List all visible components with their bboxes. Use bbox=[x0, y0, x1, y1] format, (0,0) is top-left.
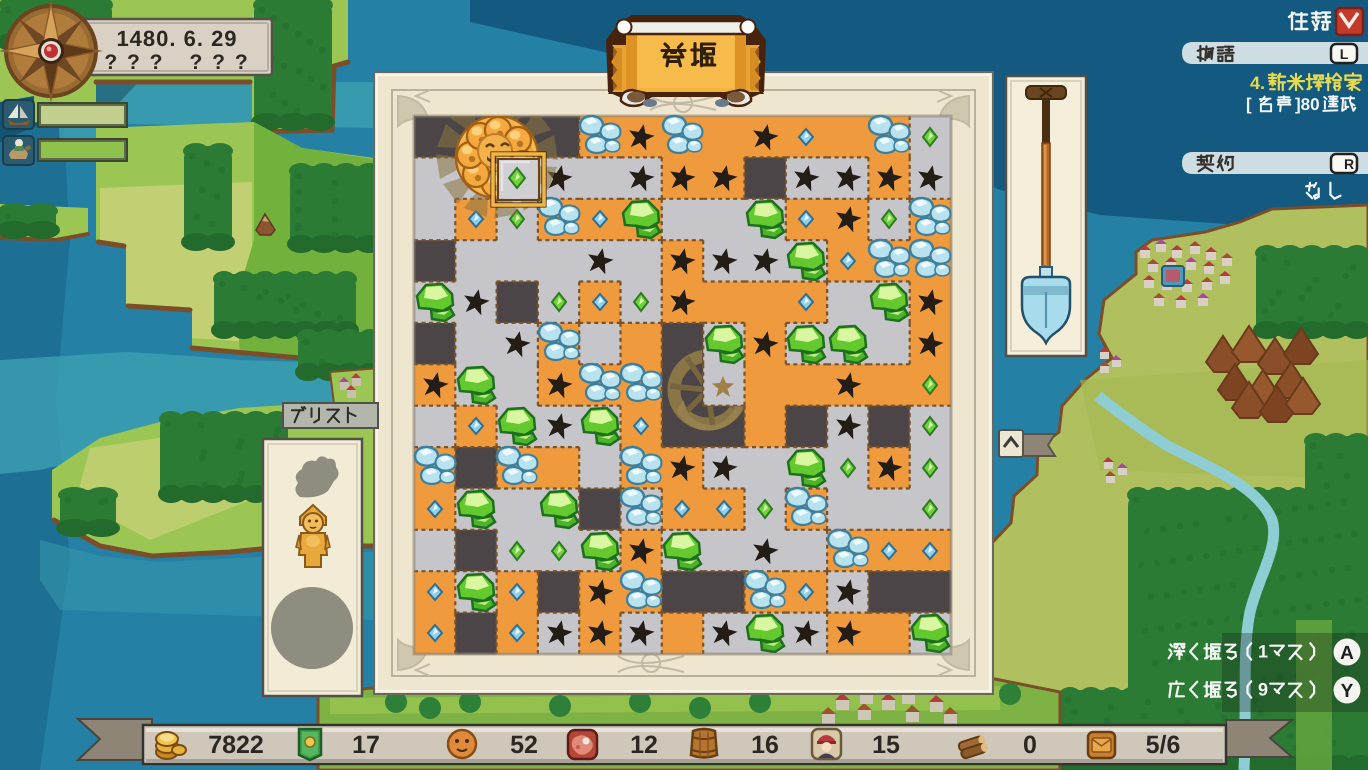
svg-text:1: 1 bbox=[1258, 642, 1268, 662]
svg-text:A: A bbox=[1340, 643, 1354, 664]
svg-text:15: 15 bbox=[872, 731, 900, 759]
svg-text:12: 12 bbox=[630, 731, 658, 759]
svg-text:17: 17 bbox=[352, 731, 380, 759]
svg-text:R: R bbox=[1344, 156, 1354, 172]
svg-text:9: 9 bbox=[1258, 680, 1268, 700]
svg-text:]80: ]80 bbox=[1295, 95, 1320, 114]
svg-text:0: 0 bbox=[1023, 731, 1037, 759]
svg-text:52: 52 bbox=[510, 731, 538, 759]
svg-text:4.: 4. bbox=[1250, 73, 1265, 93]
svg-text:[: [ bbox=[1246, 95, 1252, 114]
svg-text:? ? ? ? ? ?: ? ? ? ? ? ? bbox=[104, 51, 249, 74]
svg-text:L: L bbox=[1340, 46, 1349, 62]
svg-text:7822: 7822 bbox=[208, 731, 264, 759]
svg-text:1480. 6. 29: 1480. 6. 29 bbox=[116, 26, 237, 51]
svg-text:5/6: 5/6 bbox=[1146, 731, 1181, 759]
svg-text:16: 16 bbox=[751, 731, 779, 759]
svg-text:Y: Y bbox=[1341, 681, 1354, 702]
